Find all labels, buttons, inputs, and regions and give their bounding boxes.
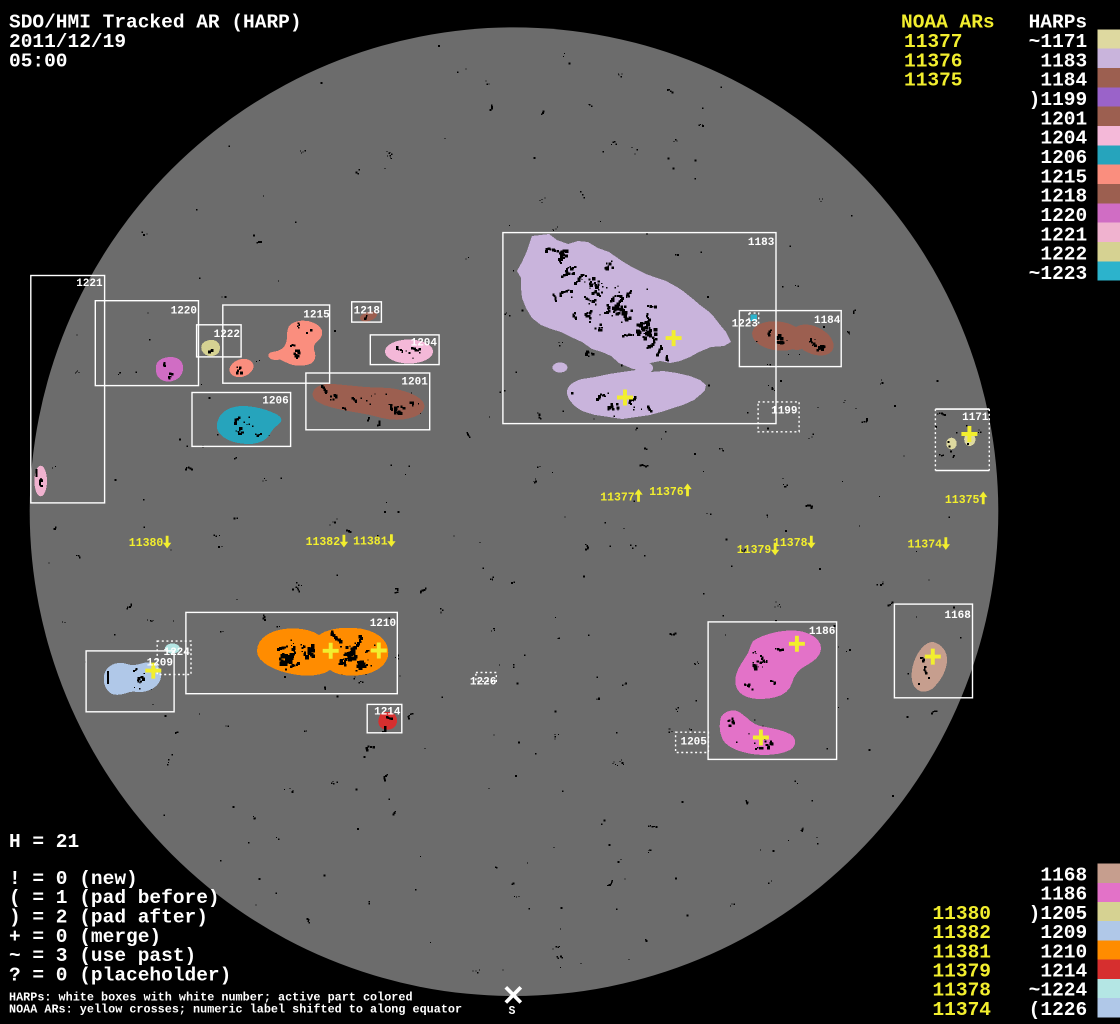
svg-text:11379: 11379 [737,544,772,557]
svg-text:1222: 1222 [214,329,240,341]
svg-text:11382: 11382 [306,536,341,549]
svg-text:1214: 1214 [374,706,401,718]
svg-text:S: S [508,1005,515,1018]
svg-text:1184: 1184 [814,315,841,327]
svg-text:H = 21: H = 21 [9,831,79,853]
svg-text:1223: 1223 [732,319,759,331]
svg-text:1204: 1204 [411,338,438,350]
svg-text:1215: 1215 [303,310,330,322]
svg-text:NOAA ARs: yellow crosses; nume: NOAA ARs: yellow crosses; numeric label … [9,1003,462,1017]
svg-text:1168: 1168 [944,610,971,622]
svg-text:11380: 11380 [129,537,164,550]
svg-text:1209: 1209 [147,657,173,669]
svg-text:11376: 11376 [649,486,684,499]
svg-text:1221: 1221 [76,278,103,290]
svg-text:1186: 1186 [809,626,835,638]
svg-text:11377: 11377 [600,492,635,505]
svg-text:1171: 1171 [962,412,989,424]
svg-text:1220: 1220 [171,305,197,317]
svg-text:(1226: (1226 [1029,999,1088,1021]
svg-text:1210: 1210 [370,618,396,630]
svg-text:11375: 11375 [904,70,963,92]
svg-text:11375: 11375 [945,494,980,507]
svg-text:1183: 1183 [748,237,775,249]
svg-text:1226: 1226 [470,677,496,689]
svg-text:~1223: ~1223 [1029,263,1088,285]
svg-text:11381: 11381 [353,536,388,549]
svg-text:1218: 1218 [354,305,381,317]
svg-text:1206: 1206 [262,395,288,407]
svg-text:1205: 1205 [680,737,707,749]
svg-text:11378: 11378 [773,537,808,550]
svg-text:11374: 11374 [932,999,991,1021]
svg-text:05:00: 05:00 [9,50,68,72]
svg-text:1199: 1199 [771,405,797,417]
svg-text:1201: 1201 [401,377,428,389]
svg-text:? = 0 (placeholder): ? = 0 (placeholder) [9,964,231,986]
svg-text:11374: 11374 [908,539,943,552]
